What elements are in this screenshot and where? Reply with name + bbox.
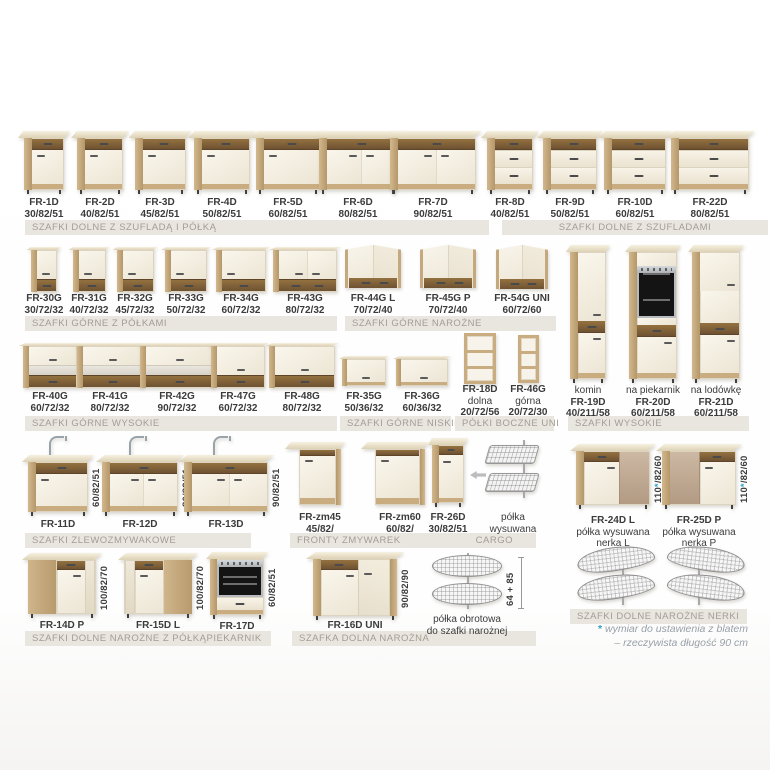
product-caption2: wysuwana <box>468 524 558 536</box>
wire-basket <box>484 445 539 464</box>
product-illustration <box>518 335 539 383</box>
cabinet-door <box>192 474 229 506</box>
handle-icon <box>99 143 108 145</box>
countertop <box>206 552 268 559</box>
corner-open-panel <box>670 452 700 504</box>
handle-icon <box>709 143 718 145</box>
footnote-asterisk: * <box>598 623 602 635</box>
product-illustration <box>28 455 88 512</box>
recessed-panel <box>85 561 95 613</box>
cabinet-side-panel <box>210 559 217 615</box>
plinth <box>217 610 263 614</box>
cabinet-leg <box>546 190 548 194</box>
cabinet-leg <box>259 615 261 619</box>
product-illustration <box>485 440 541 498</box>
wall-bottom-drawer <box>424 278 472 288</box>
cabinet-leg <box>138 190 140 194</box>
product-label: FR-11D <box>13 519 103 531</box>
cabinet-leg <box>187 512 189 516</box>
plinth <box>578 373 605 378</box>
handle-icon <box>66 564 75 566</box>
cabinet-door <box>264 150 319 184</box>
product-code: FR-15D L <box>113 620 203 632</box>
countertop <box>566 245 610 252</box>
plinth <box>264 184 319 189</box>
product-code: FR-14D P <box>17 620 107 632</box>
handle-icon <box>346 575 354 577</box>
carousel-tray <box>432 583 502 605</box>
cabinet-side-panel <box>390 559 397 616</box>
cabinet-leg <box>645 505 647 509</box>
product-illustration <box>543 131 597 190</box>
product-label: na lodówkęFR-21D60/211/58 <box>671 385 761 420</box>
product-FR-46G: FR-46Ggórna20/72/30 <box>483 335 573 426</box>
countertop <box>178 455 274 462</box>
product-illustration <box>345 245 401 288</box>
handle-icon <box>634 158 643 160</box>
handle-icon <box>443 461 451 463</box>
handle-icon <box>176 273 184 275</box>
cabinet-door <box>584 462 619 504</box>
plinth <box>192 506 267 511</box>
drawer-front <box>612 150 665 167</box>
product-illustration <box>210 552 264 615</box>
cabinet-door <box>578 333 605 373</box>
handle-icon <box>207 155 215 157</box>
product-illustration <box>28 553 96 614</box>
cabinet-door <box>398 150 436 184</box>
wall-bottom-drawer <box>349 278 397 288</box>
handle-icon <box>441 155 449 157</box>
cabinet-side-panel <box>28 462 36 512</box>
handle-icon <box>176 359 184 361</box>
handle-icon <box>509 158 518 160</box>
product-FR-25D P: FR-25D Ppółka wysuwananerka P110*/82/60 <box>651 444 747 557</box>
product-label: FR-16D UNI <box>310 620 400 632</box>
product-code: FR-25D P <box>651 515 747 527</box>
plinth <box>327 184 396 189</box>
cabinet-door <box>202 150 249 184</box>
open-shelf-unit <box>518 335 539 383</box>
product-FR-15D L: FR-15D L100/82/70 <box>113 553 203 662</box>
product-label: FR-24D Lpółka wysuwananerka L <box>565 515 661 550</box>
product-dims: 45/82/ <box>275 524 365 536</box>
product-illustration <box>570 245 606 379</box>
cabinet-leg <box>459 503 461 507</box>
drawer-front <box>584 452 619 462</box>
cabinet-leg <box>435 503 437 507</box>
handle-icon <box>234 479 242 481</box>
cabinet-door <box>700 462 735 504</box>
product-illustration <box>102 455 178 512</box>
product-code: FR-46G <box>483 384 573 396</box>
cabinet-leg <box>674 190 676 194</box>
product-illustration <box>319 131 397 190</box>
handle-icon <box>139 467 148 469</box>
handle-icon <box>37 155 45 157</box>
product-illustration <box>216 247 266 292</box>
catalog-page: SZAFKI DOLNE Z SZUFLADĄ I PÓŁKĄ SZAFKI D… <box>0 0 770 770</box>
product-illustration <box>577 547 655 605</box>
product-FR-17D: FR-17D60/82/51 <box>192 552 282 663</box>
handle-icon <box>239 285 248 287</box>
product-illustration <box>671 131 749 190</box>
handle-icon <box>295 273 303 275</box>
cabinet-side-panel <box>319 138 327 190</box>
cabinet-side-panel <box>390 138 398 190</box>
cabinet-side-panel <box>432 445 439 503</box>
product-FR-13D: FR-13D90/82/51 <box>181 455 271 561</box>
cabinet-side-panel <box>543 138 551 190</box>
cabinet-leg <box>259 190 261 194</box>
cabinet-side-panel <box>77 138 85 190</box>
dims-asterisk: * <box>739 483 750 487</box>
cabinet-leg <box>322 190 324 194</box>
product-code: FR-17D <box>192 621 282 633</box>
handle-icon <box>300 381 309 383</box>
product-label: FR-13D <box>181 519 271 531</box>
handle-icon <box>607 467 615 469</box>
countertop <box>118 553 198 560</box>
countertop <box>598 131 672 138</box>
countertop <box>656 444 742 451</box>
cabinet-door <box>229 474 267 506</box>
handle-icon <box>140 575 148 577</box>
product-code: FR-zm45 <box>275 512 365 524</box>
product-label: półkawysuwana <box>468 512 558 535</box>
product-illustration <box>432 553 502 609</box>
cargo-basket <box>485 440 541 498</box>
handle-icon <box>436 282 445 284</box>
product-illustration <box>604 131 666 190</box>
countertop <box>22 553 102 560</box>
product-FR-14D P: FR-14D P100/82/70 <box>17 553 107 662</box>
handle-icon <box>424 155 432 157</box>
cabinet-leg <box>573 379 575 383</box>
product-caption: półka wysuwana <box>565 527 661 539</box>
cabinet-side-panel <box>24 138 32 190</box>
product-label: FR-25D Ppółka wysuwananerka P <box>651 515 747 550</box>
cabinet-leg <box>579 505 581 509</box>
drawer-front <box>439 446 463 455</box>
cabinet-leg <box>83 512 85 516</box>
handle-icon <box>131 479 139 481</box>
handle-icon <box>49 359 57 361</box>
cabinet-door <box>135 570 162 613</box>
product-code: FR-12D <box>95 519 185 531</box>
cabinet-door <box>321 570 358 615</box>
plinth <box>700 373 739 378</box>
handle-icon <box>381 460 389 462</box>
product-code: FR-22D <box>665 197 755 209</box>
dimension-line <box>518 557 524 609</box>
handle-icon <box>225 467 234 469</box>
product-illustration <box>256 131 320 190</box>
product-FR-zm45: FR-zm4545/82/ <box>275 442 365 554</box>
product-dims: 80/82/51 <box>665 209 755 221</box>
cabinet-side-panel <box>102 462 110 512</box>
oven-controls <box>641 268 672 271</box>
cabinet-door <box>439 455 463 498</box>
handle-icon <box>90 155 98 157</box>
recessed-panel <box>125 561 135 613</box>
product-code: FR-11D <box>13 519 103 531</box>
handle-icon <box>715 328 724 330</box>
cabinet-leg <box>127 614 129 618</box>
nerka-shelf <box>577 547 655 605</box>
handle-icon <box>713 456 722 458</box>
footnote-line1: * wymiar do ustawienia z blatem <box>498 623 748 637</box>
product-illustration <box>692 245 740 379</box>
plinth <box>612 184 665 189</box>
product-illustration <box>432 438 464 503</box>
cabinet-door <box>143 474 177 506</box>
handle-icon <box>292 285 301 287</box>
handle-icon <box>145 564 154 566</box>
handle-icon <box>357 143 366 145</box>
handle-icon <box>109 359 117 361</box>
product-cargo: półkawysuwana <box>468 440 558 554</box>
cabinet-door <box>279 251 307 279</box>
plinth <box>300 498 335 504</box>
drawer-front <box>679 139 748 150</box>
product-FR-22D: FR-22D80/82/51 <box>665 131 755 239</box>
handle-icon <box>569 158 578 160</box>
handle-icon <box>108 381 117 383</box>
corner-wall-cabinet <box>496 245 548 289</box>
faucet-icon <box>213 436 228 455</box>
product-illustration <box>299 442 341 505</box>
cabinet-leg <box>695 379 697 383</box>
faucet-icon <box>129 436 144 455</box>
cabinet-door <box>36 474 87 506</box>
product-code: FR-16D UNI <box>310 620 400 632</box>
handle-icon <box>366 155 374 157</box>
handle-icon <box>41 479 49 481</box>
handle-icon <box>305 460 313 462</box>
cabinet-door <box>700 253 739 291</box>
handle-icon <box>652 330 661 332</box>
cabinet-side-panel <box>692 252 700 379</box>
cabinet-leg <box>263 512 265 516</box>
drawer-front <box>700 452 735 462</box>
cabinet-leg <box>197 190 199 194</box>
corner-open-panel <box>619 452 649 504</box>
faucet-icon <box>49 436 64 455</box>
handle-icon <box>593 314 601 316</box>
kidney-tray <box>666 570 746 603</box>
handle-icon <box>361 282 370 284</box>
product-illustration <box>576 444 650 505</box>
product-caption: półka wysuwana <box>651 527 747 539</box>
cabinet-side-panel <box>604 138 612 190</box>
handle-icon <box>43 143 52 145</box>
handle-icon <box>349 155 357 157</box>
cabinet-leg <box>735 379 737 383</box>
kidney-tray <box>666 542 746 575</box>
product-FR-21D: na lodówkęFR-21D60/211/58 <box>671 245 761 427</box>
cabinet-leg <box>173 512 175 516</box>
product-code: FR-24D L <box>565 515 661 527</box>
drawer-front <box>135 561 162 570</box>
cabinet-door <box>700 335 739 373</box>
handle-icon <box>569 143 578 145</box>
drawer-front <box>679 150 748 167</box>
product-illustration <box>194 131 250 190</box>
shelf <box>521 366 536 369</box>
drawer-front <box>264 139 319 150</box>
handle-icon <box>709 158 718 160</box>
oven-control-panel <box>217 560 263 567</box>
drawer-front <box>110 463 177 474</box>
corner-wall-cabinet <box>345 245 401 288</box>
handle-icon <box>335 564 344 566</box>
handle-icon <box>727 340 735 342</box>
cabinet-side-panel <box>135 138 143 190</box>
handle-icon <box>148 479 156 481</box>
cabinet-door <box>700 291 739 323</box>
product-illustration <box>662 444 736 505</box>
product-label: FR-22D80/82/51 <box>665 197 755 220</box>
drawer-front <box>398 139 475 150</box>
drawer-front <box>217 597 263 610</box>
handle-icon <box>593 338 601 340</box>
cabinet-side-panel <box>184 462 192 512</box>
handle-icon <box>312 273 320 275</box>
plinth <box>36 506 87 511</box>
drawer-front <box>36 463 87 474</box>
cabinet-leg <box>665 505 667 509</box>
drawer-front <box>57 561 84 570</box>
handle-icon <box>217 479 225 481</box>
product-code: FR-13D <box>181 519 271 531</box>
cabinet-leg <box>105 512 107 516</box>
footnote-line2: – rzeczywista długość 90 cm <box>498 637 748 651</box>
cabinet-leg <box>91 614 93 618</box>
handle-icon <box>634 143 643 145</box>
countertop <box>688 245 744 252</box>
handle-icon <box>362 377 370 379</box>
countertop <box>428 438 468 445</box>
cabinet-side-panel <box>671 138 679 190</box>
handle-icon <box>48 381 57 383</box>
carousel-tray <box>432 555 502 577</box>
cabinet-door <box>327 150 361 184</box>
product-caption_top: na lodówkę <box>671 385 761 397</box>
corner-wall-cabinet <box>420 245 476 288</box>
product-caption: półka <box>468 512 558 524</box>
wall-bottom-drawer <box>222 279 265 291</box>
cabinet-side-panel <box>256 138 264 190</box>
product-FR-11D: FR-11D60/82/51 <box>13 455 103 561</box>
drawer-front <box>700 323 739 335</box>
cabinet-door <box>578 253 605 321</box>
handle-icon <box>221 143 230 145</box>
handle-icon <box>237 369 245 371</box>
product-label: FR-zm4545/82/ <box>275 512 365 535</box>
cabinet-side-panel <box>313 559 321 616</box>
plinth <box>439 498 463 502</box>
handle-icon <box>454 282 463 284</box>
handle-icon <box>727 284 735 286</box>
product-dims: 60/211/58 <box>671 408 761 420</box>
cabinet-leg <box>601 379 603 383</box>
oven-door <box>217 567 263 597</box>
product-illustration <box>629 245 677 379</box>
product-code: FR-21D <box>671 397 761 409</box>
product-illustration <box>496 245 548 289</box>
handle-icon <box>184 285 193 287</box>
handle-icon <box>448 449 455 451</box>
product-label: FR-46Ggórna20/72/30 <box>483 384 573 419</box>
product-label: FR-14D P <box>17 620 107 632</box>
cabinet-side-panel <box>629 252 637 379</box>
cabinet-leg <box>187 614 189 618</box>
product-illustration <box>420 245 476 288</box>
nerka-shelf <box>667 547 745 605</box>
cabinet-leg <box>393 190 395 194</box>
cabinet-leg <box>27 190 29 194</box>
oven-controls <box>221 562 259 565</box>
product-label: FR-15D L <box>113 620 203 632</box>
handle-icon <box>364 573 372 575</box>
handle-icon <box>128 273 136 275</box>
drawer-front <box>321 560 358 570</box>
handle-icon <box>420 377 428 379</box>
product-illustration <box>124 553 192 614</box>
cabinet-leg <box>661 190 663 194</box>
cabinet-leg <box>744 190 746 194</box>
cabinet-leg <box>213 615 215 619</box>
product-label: FR-17D <box>192 621 282 633</box>
countertop <box>665 131 755 138</box>
handle-icon <box>509 143 518 145</box>
product-illustration <box>184 455 268 512</box>
plinth <box>202 184 249 189</box>
product-dims-vertical: 110*/82/60 <box>739 452 750 506</box>
cabinet-door <box>300 456 335 498</box>
drawer-front <box>327 139 396 150</box>
drawer-front <box>192 463 267 474</box>
product-dims-vertical: 90/82/90 <box>400 560 411 617</box>
cabinet-side-panel <box>662 451 670 505</box>
product-dims-vertical: 60/82/51 <box>267 560 278 616</box>
cabinet-side-panel <box>576 451 584 505</box>
handle-icon <box>269 155 277 157</box>
cabinet-leg <box>31 512 33 516</box>
handle-icon <box>148 155 156 157</box>
wall-bottom-drawer <box>500 279 544 289</box>
handle-icon <box>236 381 245 383</box>
corner-return-panel <box>358 560 389 615</box>
footnote: * wymiar do ustawienia z blatem – rzeczy… <box>498 623 748 650</box>
product-label: FR-12D <box>95 519 185 531</box>
handle-icon <box>57 467 66 469</box>
cabinet-door <box>57 570 84 613</box>
drawer-front <box>578 321 605 333</box>
product-illustration <box>390 131 476 190</box>
product-illustration <box>313 552 397 616</box>
handle-icon <box>569 175 578 177</box>
handle-icon <box>432 143 441 145</box>
product-FR-12D: FR-12D80/82/51 <box>95 455 185 561</box>
handle-icon <box>159 143 168 145</box>
corner-side-panel <box>28 560 56 614</box>
handle-icon <box>175 381 184 383</box>
drawer-front <box>202 139 249 150</box>
product-illustration <box>667 547 745 605</box>
handle-icon <box>597 456 606 458</box>
